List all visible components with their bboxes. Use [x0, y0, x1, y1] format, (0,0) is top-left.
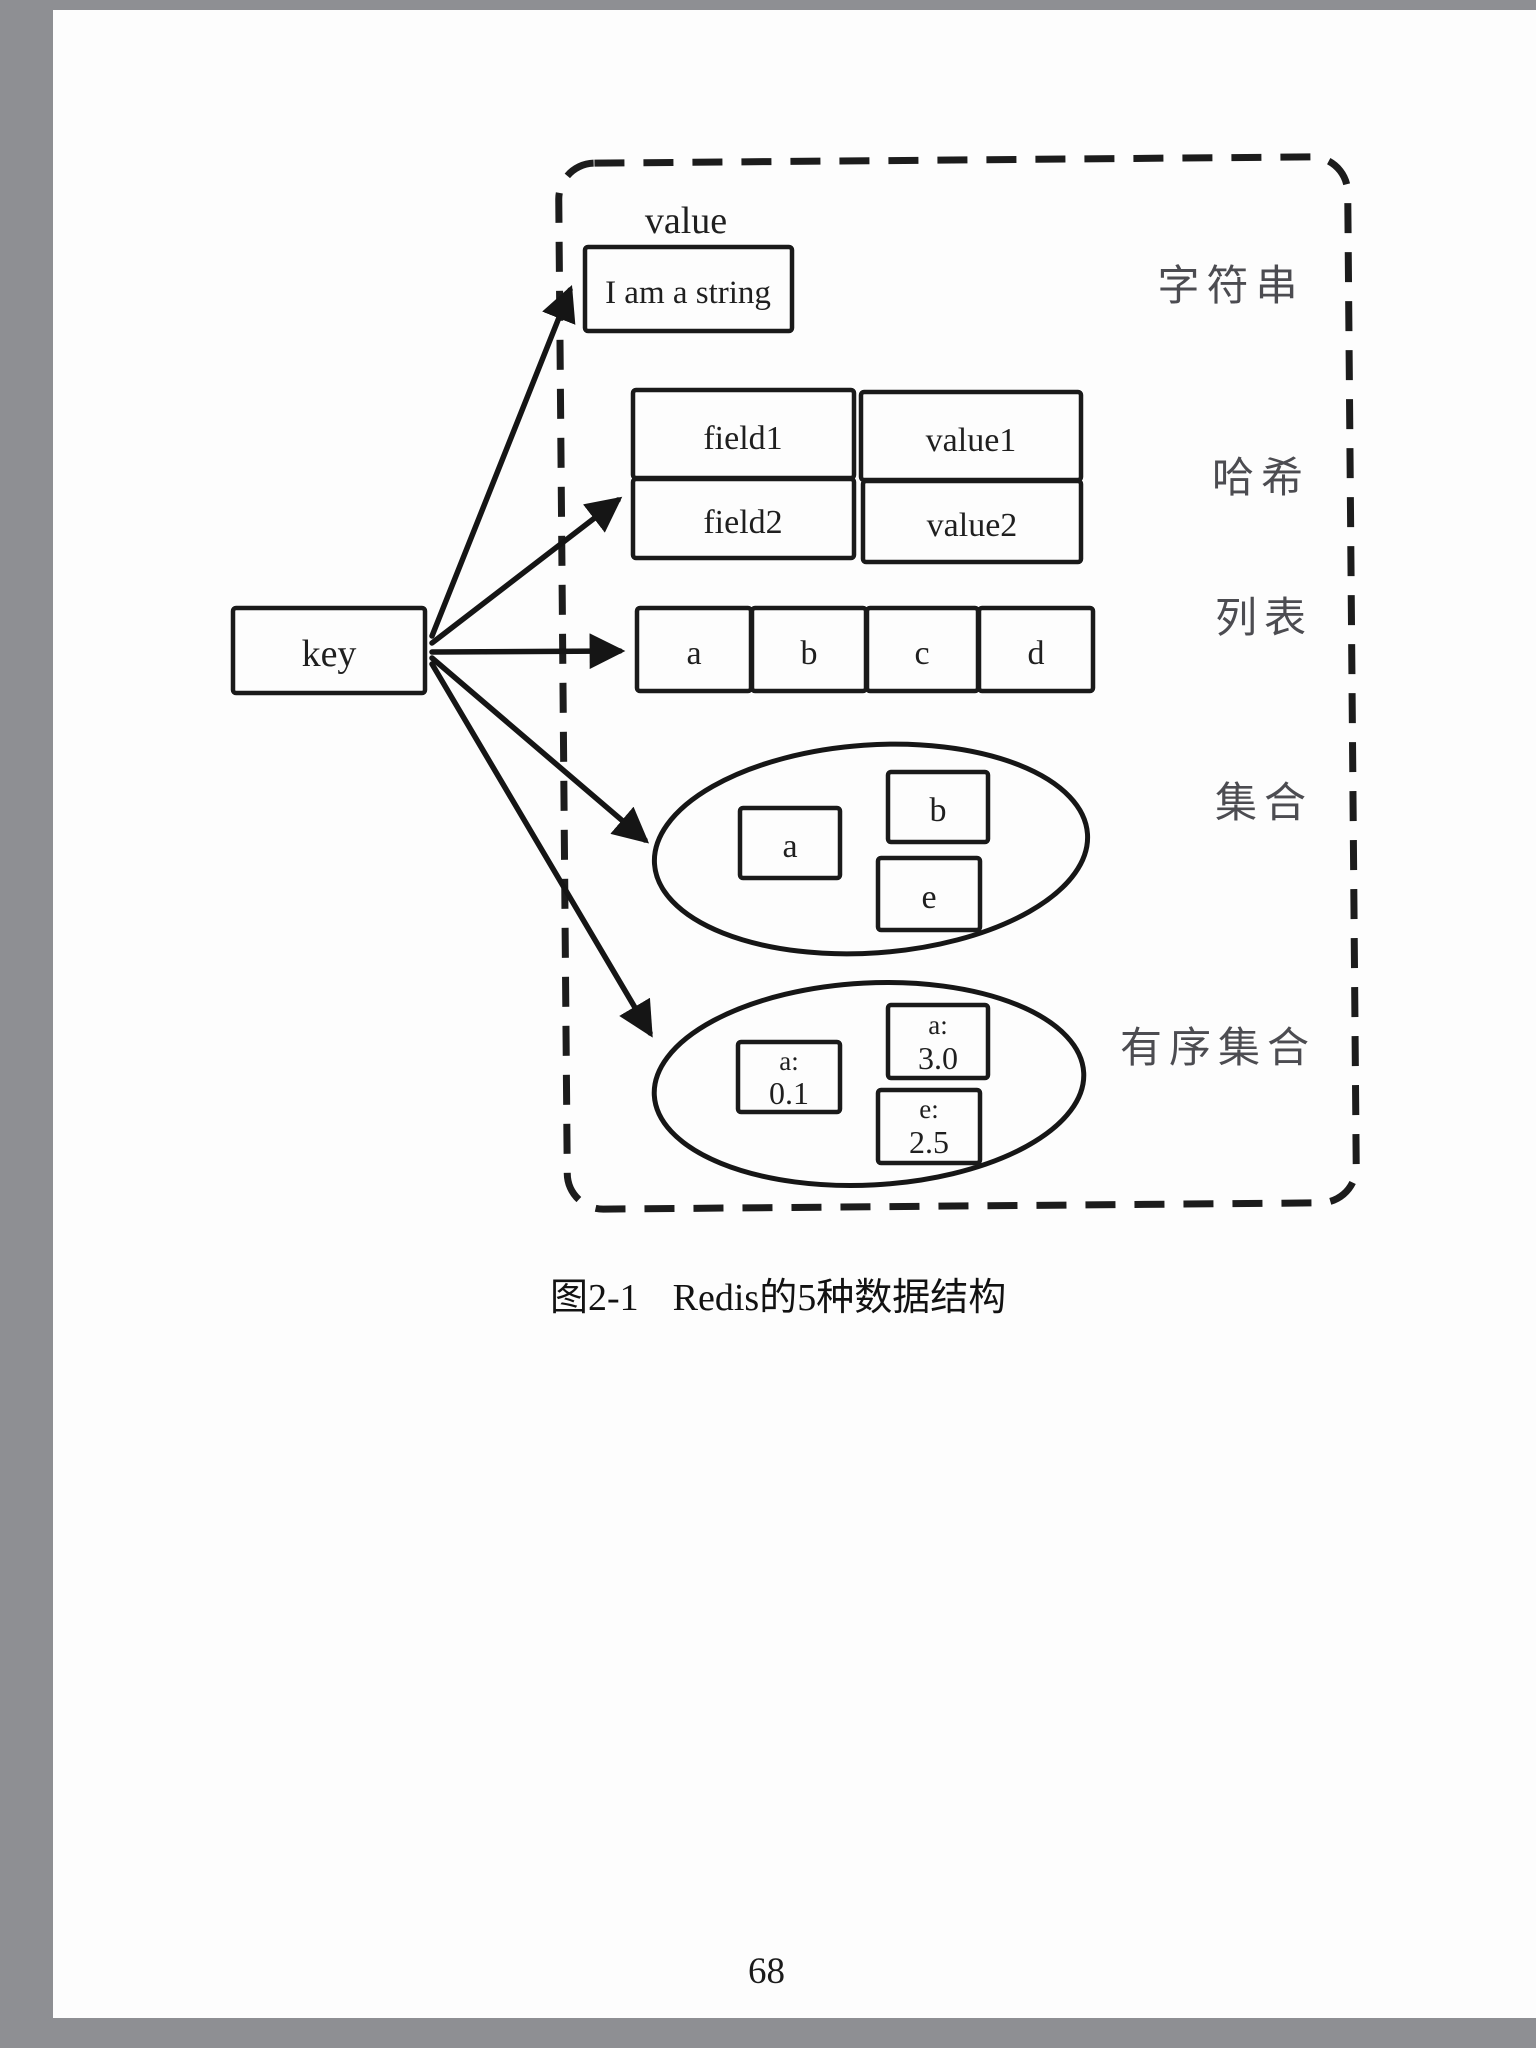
set-member-text: a — [782, 828, 797, 865]
sorted-set-member-text: e: — [919, 1094, 939, 1124]
hash-value2-text: value2 — [927, 507, 1018, 544]
value-header-label: value — [645, 200, 727, 242]
sorted-set-member-text: a: — [779, 1046, 799, 1076]
sorted-set-score-text: 3.0 — [918, 1040, 958, 1076]
page-number: 68 — [53, 1950, 1480, 1993]
set-member-text: b — [930, 792, 947, 829]
sorted-set-member-text: a: — [928, 1010, 948, 1040]
arrow-key-to-sorted-set — [432, 664, 650, 1033]
hash-field2-text: field2 — [703, 504, 782, 541]
arrow-key-to-list — [432, 651, 620, 652]
book-page: key value I am a string field1 value1 fi… — [53, 10, 1536, 2018]
type-label-set: 集合 — [1215, 781, 1313, 827]
figure-label: 图2-1 — [550, 1266, 639, 1321]
arrow-key-to-string — [432, 290, 570, 636]
string-value-text: I am a string — [605, 275, 771, 311]
set-ellipse — [647, 730, 1094, 968]
set-member-text: e — [921, 879, 936, 916]
sorted-set-score-text: 0.1 — [769, 1075, 809, 1111]
list-item-text: b — [801, 635, 818, 672]
type-label-string: 字符串 — [1157, 263, 1304, 310]
list-item-text: d — [1028, 635, 1045, 672]
sorted-set-score-text: 2.5 — [909, 1124, 949, 1160]
list-item-text: c — [914, 635, 929, 672]
list-item-text: a — [686, 635, 701, 672]
ebook-page-view: { "page": { "number": "68", "caption": {… — [0, 0, 1536, 2048]
hash-field1-text: field1 — [703, 420, 782, 457]
redis-data-structures-diagram: key value I am a string field1 value1 fi… — [53, 10, 1536, 1260]
sorted-set-ellipse — [649, 972, 1089, 1196]
hash-value1-text: value1 — [926, 422, 1017, 459]
figure-title: Redis的5种数据结构 — [673, 1266, 1007, 1321]
arrow-key-to-set — [432, 658, 645, 840]
type-label-list: 列表 — [1215, 596, 1313, 642]
figure-caption: 图2-1 Redis的5种数据结构 — [550, 1266, 1006, 1321]
type-label-hash: 哈希 — [1212, 456, 1310, 502]
key-label: key — [302, 633, 357, 675]
type-label-sorted-set: 有序集合 — [1120, 1026, 1316, 1072]
